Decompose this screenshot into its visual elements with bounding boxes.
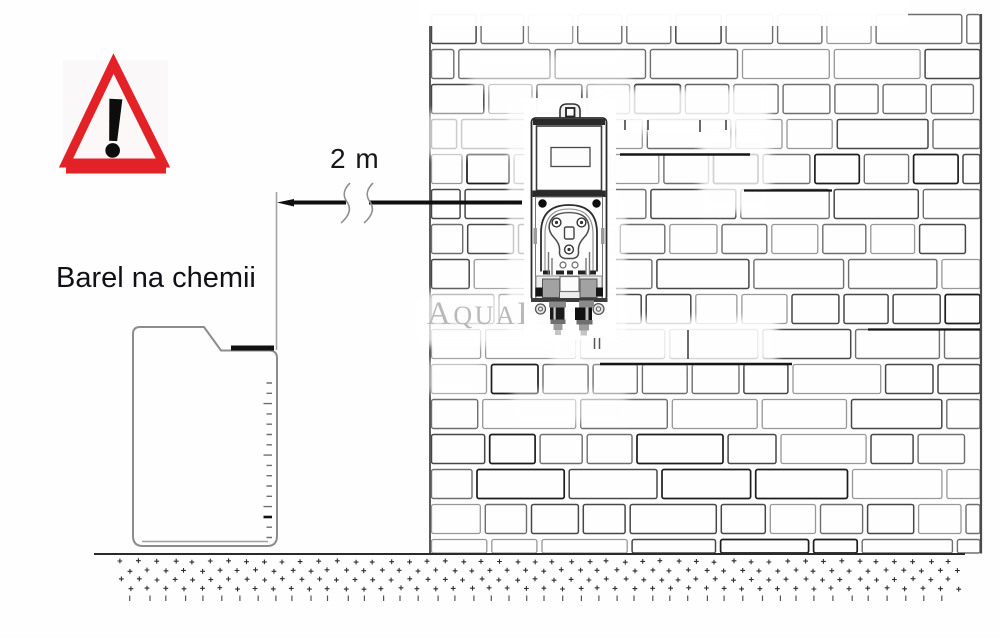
svg-text:2 m: 2 m (330, 143, 380, 174)
svg-text:Barel na chemii: Barel na chemii (56, 262, 256, 294)
